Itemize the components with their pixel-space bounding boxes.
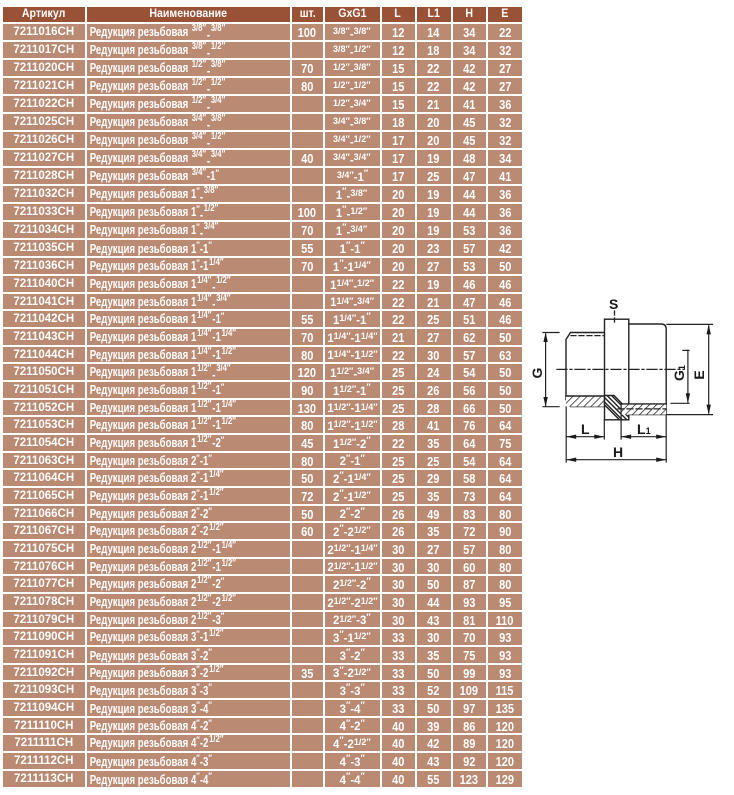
svg-text:H: H — [613, 444, 623, 460]
svg-text:E: E — [691, 370, 707, 379]
svg-text:L: L — [581, 421, 590, 437]
svg-text:L1: L1 — [637, 421, 651, 437]
svg-text:G1: G1 — [671, 365, 687, 381]
svg-text:S: S — [609, 296, 618, 312]
svg-text:G: G — [530, 367, 545, 378]
